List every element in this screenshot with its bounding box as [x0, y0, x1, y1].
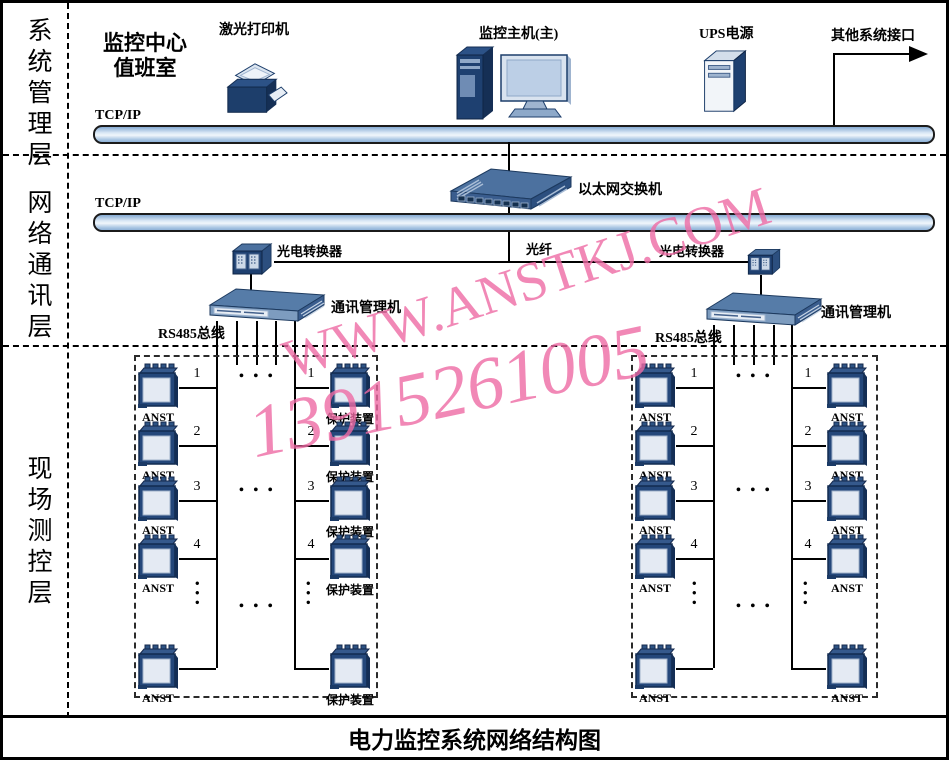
other-systems-label: 其他系统接口	[831, 25, 915, 45]
protection-device-icon	[137, 363, 179, 409]
column-ellipsis: • • •	[736, 369, 770, 385]
column-ellipsis: • • •	[736, 483, 770, 499]
device-row: ANST	[634, 644, 716, 706]
fiber-label: 光纤	[526, 239, 552, 258]
rs485-bus-left-label: RS485总线	[158, 323, 225, 343]
protection-device-icon	[137, 421, 179, 467]
rs485-connector-line	[294, 500, 329, 502]
rs485-connector-line	[294, 558, 329, 560]
protection-device-icon	[329, 363, 371, 409]
protection-device-icon	[826, 534, 868, 580]
label-strip-divider	[67, 3, 69, 718]
diagram-title-bar: 电力监控系统网络结构图	[3, 715, 946, 757]
ethernet-switch-label: 以太网交换机	[578, 179, 662, 199]
network-structure-diagram: 系统管理层 网络通讯层 现场测控层 监控中心 值班室 激光打印机 监控主机(主)…	[0, 0, 949, 760]
device-label: ANST	[625, 581, 685, 596]
device-number: 1	[678, 366, 710, 382]
protection-device-icon	[634, 476, 676, 522]
rs485-connector-line	[179, 387, 216, 389]
ups-icon	[700, 49, 750, 119]
tcpip-bus2-label: TCP/IP	[95, 196, 141, 212]
layer-divider-2	[3, 345, 946, 347]
protection-device-icon	[329, 421, 371, 467]
rs485-connector-line	[676, 500, 713, 502]
device-row: 3 ANST	[634, 476, 716, 538]
device-row: 4 ANST	[791, 534, 873, 596]
control-room-label: 监控中心 值班室	[91, 31, 199, 81]
rs485-connector-line	[179, 445, 216, 447]
protection-device-icon	[329, 476, 371, 522]
layer-label-field: 现场测控层	[17, 455, 55, 610]
rs485-bus-right-label: RS485总线	[655, 327, 722, 347]
device-row: 4 ANST	[137, 534, 219, 596]
device-row: ANST	[791, 644, 873, 706]
device-column: ••• 1 ANST 2 ANST 3 ANST	[137, 355, 219, 698]
optical-converter-right-label: 光电转换器	[659, 241, 724, 260]
tcpip-bus2	[93, 213, 935, 232]
rs485-connector-line	[791, 387, 826, 389]
device-row: 2 保护装置	[294, 421, 376, 483]
tcpip-bus1	[93, 125, 935, 144]
rs485-connector-line	[791, 445, 826, 447]
other-systems-line-horizontal	[833, 53, 911, 55]
device-label: ANST	[128, 691, 188, 706]
device-row: 2 ANST	[137, 421, 219, 483]
device-column: ••• 1 ANST 2 ANST 3 ANST	[791, 355, 873, 698]
device-label: ANST	[817, 581, 877, 596]
rs485-connector-line	[791, 668, 826, 670]
rs485-connector-line	[179, 500, 216, 502]
device-column: ••• 1 保护装置 2 保护装置 3 保护装置	[294, 355, 376, 698]
device-number: 3	[678, 479, 710, 495]
comm-manager-right-label: 通讯管理机	[821, 302, 891, 322]
device-number: 4	[295, 537, 327, 553]
device-label: 保护装置	[320, 691, 380, 708]
device-number: 1	[792, 366, 824, 382]
protection-device-icon	[826, 476, 868, 522]
tcpip-bus1-label: TCP/IP	[95, 108, 141, 124]
column-ellipsis: • • •	[736, 599, 770, 615]
device-row: 4 保护装置	[294, 534, 376, 596]
device-row: 1 保护装置	[294, 363, 376, 425]
device-row: 1 ANST	[137, 363, 219, 425]
device-number: 1	[295, 366, 327, 382]
protection-device-icon	[826, 644, 868, 690]
device-number: 3	[181, 479, 213, 495]
printer-label: 激光打印机	[219, 19, 289, 39]
switch-fiber-drop-line	[508, 231, 510, 262]
device-row: 3 ANST	[791, 476, 873, 538]
device-number: 2	[678, 424, 710, 440]
device-number: 4	[792, 537, 824, 553]
layer-label-system: 系统管理层	[17, 17, 55, 172]
rs485-connector-line	[791, 558, 826, 560]
column-ellipsis: • • •	[239, 369, 273, 385]
protection-device-icon	[634, 363, 676, 409]
device-number: 2	[792, 424, 824, 440]
protection-device-icon	[634, 534, 676, 580]
protection-device-icon	[329, 534, 371, 580]
optical-converter-left-icon	[229, 241, 275, 275]
device-row: 2 ANST	[634, 421, 716, 483]
ethernet-switch-icon	[445, 163, 575, 213]
device-label: 保护装置	[320, 581, 380, 598]
device-row: 保护装置	[294, 644, 376, 706]
protection-device-icon	[329, 644, 371, 690]
rs485-connector-line	[294, 445, 329, 447]
device-row: 2 ANST	[791, 421, 873, 483]
rs485-connector-line	[791, 500, 826, 502]
device-number: 3	[792, 479, 824, 495]
comm-manager-left-label: 通讯管理机	[331, 297, 401, 317]
monitor-host-icon	[455, 43, 573, 125]
protection-device-icon	[137, 534, 179, 580]
device-row: ANST	[137, 644, 219, 706]
rs485-connector-line	[294, 668, 329, 670]
fiber-line	[274, 261, 752, 263]
device-number: 4	[678, 537, 710, 553]
device-row: 1 ANST	[634, 363, 716, 425]
column-ellipsis: • • •	[239, 483, 273, 499]
protection-device-icon	[137, 476, 179, 522]
device-label: ANST	[817, 691, 877, 706]
optical-converter-left-label: 光电转换器	[277, 241, 342, 260]
other-systems-line-vertical	[833, 53, 835, 127]
rs485-connector-line	[179, 558, 216, 560]
device-row: 3 ANST	[137, 476, 219, 538]
device-number: 3	[295, 479, 327, 495]
device-number: 2	[295, 424, 327, 440]
printer-icon	[222, 59, 288, 119]
rs485-connector-line	[676, 668, 713, 670]
protection-device-icon	[826, 421, 868, 467]
comm-manager-left-icon	[206, 285, 328, 327]
other-systems-arrowhead	[909, 46, 928, 62]
layer-divider-1	[3, 154, 946, 156]
protection-device-icon	[634, 421, 676, 467]
diagram-title: 电力监控系统网络结构图	[348, 721, 601, 755]
device-label: ANST	[625, 691, 685, 706]
optical-converter-right-icon	[745, 246, 783, 276]
rs485-connector-line	[179, 668, 216, 670]
comm-manager-right-icon	[703, 289, 825, 331]
device-label: ANST	[128, 581, 188, 596]
device-row: 3 保护装置	[294, 476, 376, 538]
protection-device-icon	[137, 644, 179, 690]
host-label: 监控主机(主)	[479, 23, 558, 43]
layer-label-network: 网络通讯层	[17, 189, 55, 344]
device-row: 1 ANST	[791, 363, 873, 425]
device-column: ••• 1 ANST 2 ANST 3 ANST	[634, 355, 716, 698]
device-row: 4 ANST	[634, 534, 716, 596]
column-ellipsis: • • •	[239, 599, 273, 615]
rs485-connector-line	[676, 387, 713, 389]
rs485-connector-line	[294, 387, 329, 389]
device-number: 1	[181, 366, 213, 382]
ups-label: UPS电源	[699, 23, 753, 43]
rs485-connector-line	[676, 445, 713, 447]
protection-device-icon	[826, 363, 868, 409]
protection-device-icon	[634, 644, 676, 690]
device-number: 2	[181, 424, 213, 440]
device-number: 4	[181, 537, 213, 553]
rs485-connector-line	[676, 558, 713, 560]
